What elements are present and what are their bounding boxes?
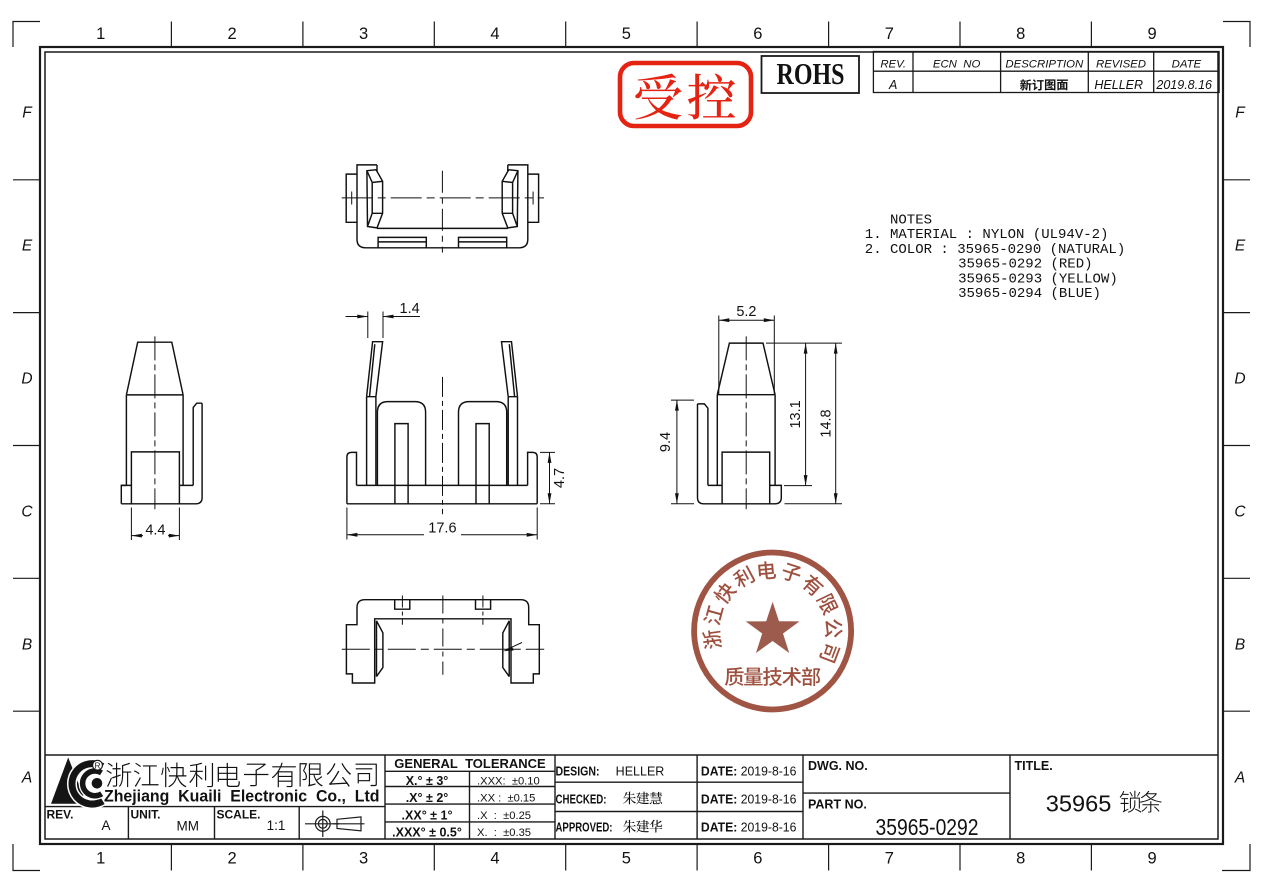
svg-text:REVISED: REVISED [1096, 59, 1146, 71]
svg-text:6: 6 [753, 850, 762, 868]
svg-text:A: A [101, 818, 110, 833]
svg-text:D: D [1234, 371, 1245, 388]
svg-text:B: B [1235, 637, 1245, 654]
svg-text:A: A [21, 770, 32, 787]
svg-text:2: 2 [228, 850, 237, 868]
svg-text:F: F [1235, 105, 1246, 122]
svg-text:8: 8 [1016, 25, 1025, 43]
svg-text:.XX : ±0.15: .XX : ±0.15 [477, 793, 535, 805]
svg-text:E: E [1235, 238, 1246, 255]
svg-text:B: B [22, 637, 32, 654]
svg-text:R: R [95, 762, 101, 771]
svg-text:.XXX: ±0.10: .XXX: ±0.10 [477, 776, 540, 788]
svg-text:1:1: 1:1 [267, 818, 286, 833]
svg-text:SCALE.: SCALE. [217, 807, 261, 821]
svg-text:TITLE.: TITLE. [1015, 759, 1053, 773]
svg-text:3: 3 [359, 25, 368, 43]
svg-text:35965: 35965 [1046, 791, 1112, 817]
svg-text:CHECKED:: CHECKED: [556, 793, 607, 807]
svg-text:1: 1 [96, 25, 105, 43]
svg-text:.X° ± 2°: .X° ± 2° [406, 791, 449, 805]
svg-text:C: C [21, 504, 33, 521]
svg-text:REV.: REV. [47, 807, 74, 821]
svg-text:A: A [888, 78, 897, 92]
svg-text:2. COLOR : 35965-0290 (NATURAL: 2. COLOR : 35965-0290 (NATURAL) [865, 242, 1125, 258]
svg-text:17.6: 17.6 [428, 521, 456, 537]
svg-text:35965-0292 (RED): 35965-0292 (RED) [958, 257, 1092, 273]
svg-text:.XXX° ± 0.5°: .XXX° ± 0.5° [392, 826, 462, 840]
svg-text:ECN NO: ECN NO [933, 59, 981, 71]
svg-text:F: F [22, 105, 33, 122]
svg-text:DESCRIPTION: DESCRIPTION [1005, 59, 1084, 71]
svg-text:DATE: DATE [1172, 59, 1202, 71]
svg-text:DATE: 2019-8-16: DATE: 2019-8-16 [701, 793, 797, 807]
svg-text:PART NO.: PART NO. [808, 798, 867, 812]
svg-text:Zhejiang Kuaili Electronic: Zhejiang Kuaili Electronic Co., Ltd [104, 787, 380, 806]
svg-text:35965-0294 (BLUE): 35965-0294 (BLUE) [958, 286, 1101, 302]
svg-text:UNIT.: UNIT. [131, 807, 161, 821]
svg-text:5: 5 [622, 25, 631, 43]
svg-text:X. : ±0.35: X. : ±0.35 [477, 827, 531, 839]
svg-text:HELLER: HELLER [616, 765, 665, 779]
svg-text:DATE: 2019-8-16: DATE: 2019-8-16 [701, 821, 797, 835]
svg-text:REV.: REV. [880, 59, 906, 71]
svg-text:MM: MM [177, 819, 200, 834]
svg-text:7: 7 [885, 25, 894, 43]
svg-text:4: 4 [490, 850, 499, 868]
svg-text:7: 7 [885, 850, 894, 868]
svg-text:13.1: 13.1 [788, 400, 804, 428]
svg-text:X.° ± 3°: X.° ± 3° [406, 774, 449, 788]
svg-text:E: E [22, 238, 33, 255]
svg-text:9.4: 9.4 [658, 432, 674, 452]
svg-text:9: 9 [1148, 850, 1157, 868]
svg-text:NOTES: NOTES [890, 213, 932, 229]
svg-text:6: 6 [753, 25, 762, 43]
svg-text:4.7: 4.7 [552, 468, 568, 488]
svg-text:4.4: 4.4 [145, 523, 165, 539]
svg-text:A: A [1234, 770, 1245, 787]
svg-text:DWG. NO.: DWG. NO. [808, 759, 868, 773]
svg-text:GENERAL TOLERANCE: GENERAL TOLERANCE [394, 756, 546, 771]
svg-text:.X : ±0.25: .X : ±0.25 [477, 810, 531, 822]
svg-text:1.4: 1.4 [400, 301, 420, 317]
svg-text:35965-0293 (YELLOW): 35965-0293 (YELLOW) [958, 271, 1118, 287]
svg-text:1: 1 [96, 850, 105, 868]
svg-text:5.2: 5.2 [736, 304, 756, 320]
svg-text:35965-0292: 35965-0292 [876, 814, 979, 840]
svg-text:.XX° ± 1°: .XX° ± 1° [402, 809, 453, 823]
svg-text:9: 9 [1148, 25, 1157, 43]
svg-text:HELLER: HELLER [1094, 78, 1143, 92]
svg-text:2019.8.16: 2019.8.16 [1155, 78, 1212, 92]
svg-text:1. MATERIAL : NYLON (UL94V-2): 1. MATERIAL : NYLON (UL94V-2) [865, 227, 1109, 243]
svg-text:DESIGN:: DESIGN: [556, 765, 600, 779]
svg-text:4: 4 [490, 25, 499, 43]
svg-text:2: 2 [228, 25, 237, 43]
svg-text:ROHS: ROHS [777, 56, 845, 91]
svg-text:DATE: 2019-8-16: DATE: 2019-8-16 [701, 765, 797, 779]
svg-text:3: 3 [359, 850, 368, 868]
svg-text:14.8: 14.8 [819, 409, 835, 437]
svg-text:APPROVED:: APPROVED: [556, 821, 613, 835]
svg-text:8: 8 [1016, 850, 1025, 868]
svg-text:D: D [21, 371, 32, 388]
svg-text:C: C [1234, 504, 1246, 521]
svg-text:5: 5 [622, 850, 631, 868]
